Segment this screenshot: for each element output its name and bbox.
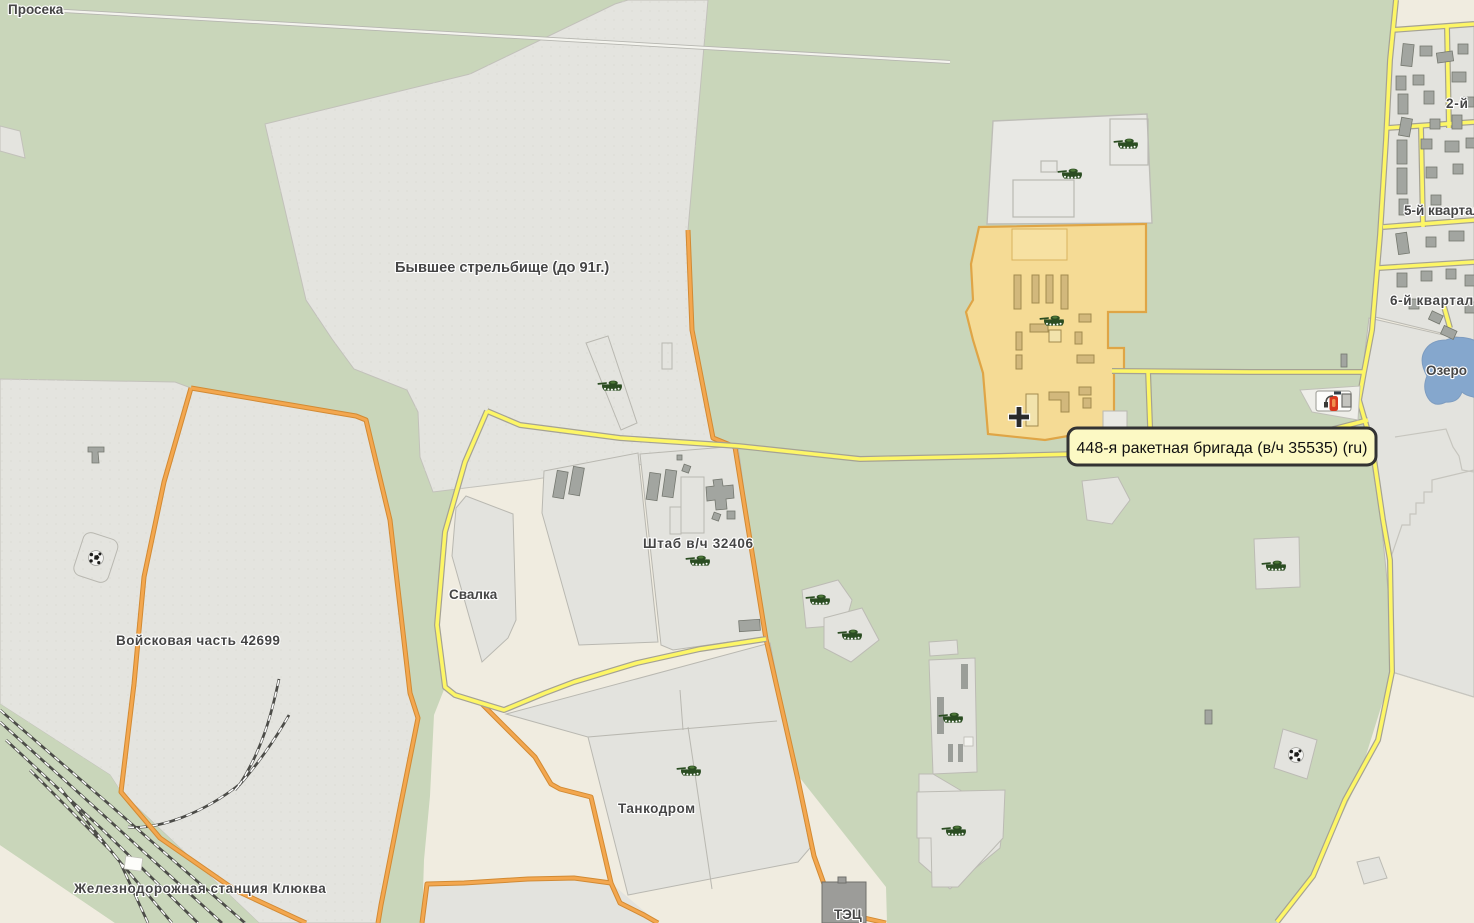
svg-text:Бывшее стрельбище (до 91г.): Бывшее стрельбище (до 91г.) [395,260,609,276]
svg-text:Танкодром: Танкодром [618,801,696,816]
svg-text:448-я ракетная бригада (в/ч 35: 448-я ракетная бригада (в/ч 35535) (ru) [1077,440,1368,457]
svg-text:6-й квартал: 6-й квартал [1390,293,1474,308]
svg-text:Войсковая часть 42699: Войсковая часть 42699 [116,633,280,648]
svg-text:ТЭЦ: ТЭЦ [834,907,862,922]
svg-text:Озеро: Озеро [1426,363,1467,378]
svg-text:2-й: 2-й [1446,96,1469,111]
svg-text:Свалка: Свалка [449,587,498,602]
svg-text:Железнодорожная станция Клюква: Железнодорожная станция Клюква [73,881,326,896]
svg-text:5-й квартал: 5-й квартал [1404,203,1474,218]
svg-text:Просека: Просека [8,2,64,17]
svg-text:Штаб в/ч 32406: Штаб в/ч 32406 [643,536,754,551]
